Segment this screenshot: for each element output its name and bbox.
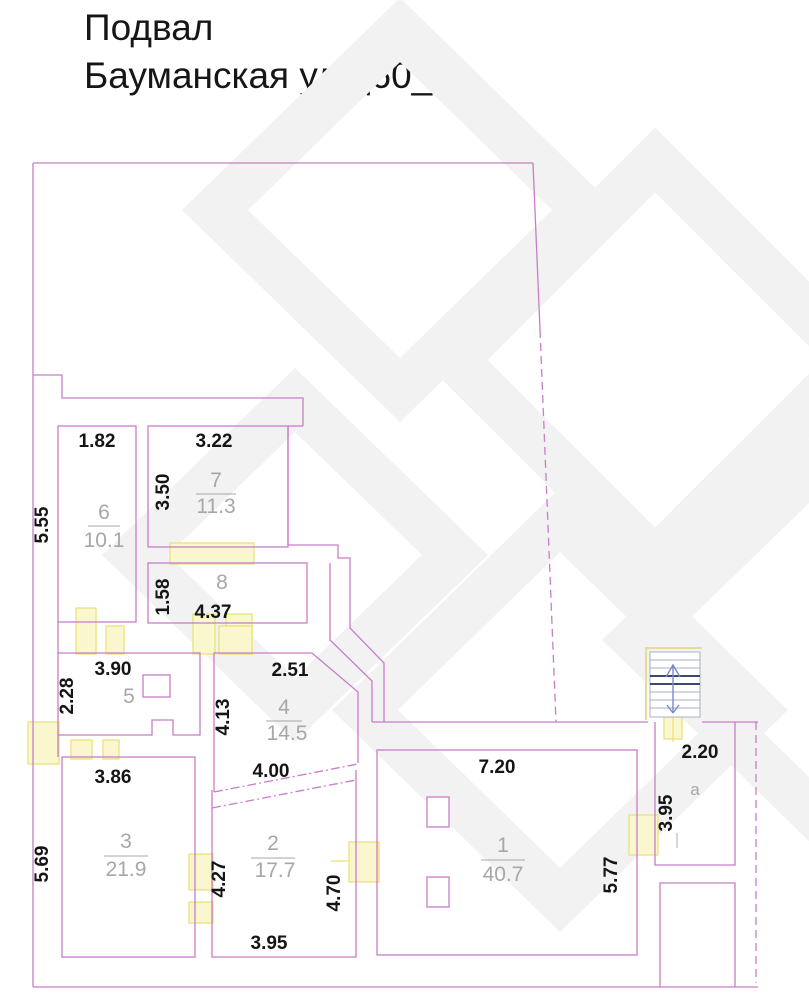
dim-room5-left: 2.28 bbox=[57, 678, 78, 715]
dim-room2-right: 4.70 bbox=[324, 875, 345, 912]
dim-room1-top: 7.20 bbox=[479, 757, 516, 778]
opening bbox=[71, 740, 92, 759]
dim-room4-top: 2.51 bbox=[272, 660, 309, 681]
room-a-letter: а bbox=[690, 780, 700, 799]
dim-room4-left: 4.13 bbox=[213, 699, 234, 736]
opening bbox=[76, 608, 96, 654]
room-1-number: 1 bbox=[497, 834, 509, 857]
room-3-area: 21.9 bbox=[106, 858, 147, 881]
dim-rooma-top: 2.20 bbox=[682, 742, 719, 763]
column bbox=[427, 797, 449, 827]
dim-room2-bottom: 3.95 bbox=[251, 933, 288, 954]
dim-room1-right: 5.77 bbox=[601, 857, 622, 894]
wall bbox=[660, 883, 735, 987]
room-8-number: 8 bbox=[216, 571, 228, 594]
room-6-walls bbox=[58, 426, 136, 622]
floor-plan-svg: 1.82 3.22 5.55 3.50 1.58 4.37 3.90 2.28 … bbox=[0, 0, 809, 1000]
dim-room7-left: 3.50 bbox=[153, 474, 174, 511]
room-1-area: 40.7 bbox=[483, 863, 524, 886]
room-3-number: 3 bbox=[120, 830, 132, 853]
dim-rooma-left: 3.95 bbox=[656, 794, 677, 831]
room-6-number: 6 bbox=[98, 501, 110, 524]
room-7-area: 11.3 bbox=[196, 495, 235, 518]
opening bbox=[629, 815, 658, 855]
dim-room2-left: 4.27 bbox=[209, 861, 230, 898]
room-6-area: 10.1 bbox=[84, 529, 125, 552]
room-2-area: 17.7 bbox=[255, 859, 296, 882]
opening bbox=[103, 740, 119, 759]
room-5-number: 5 bbox=[123, 685, 135, 708]
room-2-number: 2 bbox=[267, 832, 279, 855]
opening bbox=[219, 626, 252, 654]
room-7-number: 7 bbox=[210, 469, 222, 492]
room-5-shaft bbox=[143, 675, 170, 697]
watermark-pattern bbox=[135, 30, 809, 900]
opening bbox=[170, 543, 254, 564]
dim-room5-top: 3.90 bbox=[95, 659, 132, 680]
dim-room6-top: 1.82 bbox=[79, 431, 116, 452]
dim-room4-bottom: 4.00 bbox=[253, 761, 290, 782]
staircase bbox=[650, 652, 700, 717]
floor-plan-page: Подвал Бауманская ул д60_5 bbox=[0, 0, 809, 1000]
dim-room6-left: 5.55 bbox=[32, 506, 53, 543]
dim-room7-top: 3.22 bbox=[196, 431, 233, 452]
opening bbox=[349, 842, 379, 882]
dim-room8-bottom: 4.37 bbox=[195, 602, 232, 623]
opening bbox=[106, 626, 124, 654]
dim-room8-left: 1.58 bbox=[153, 579, 174, 616]
room-4-number: 4 bbox=[278, 696, 290, 719]
dim-room3-top: 3.86 bbox=[95, 767, 132, 788]
room-2-top-boundary bbox=[212, 780, 356, 808]
column bbox=[427, 877, 449, 907]
opening bbox=[189, 902, 213, 923]
dim-room3-left: 5.69 bbox=[32, 846, 53, 883]
room-4-area: 14.5 bbox=[267, 722, 308, 745]
